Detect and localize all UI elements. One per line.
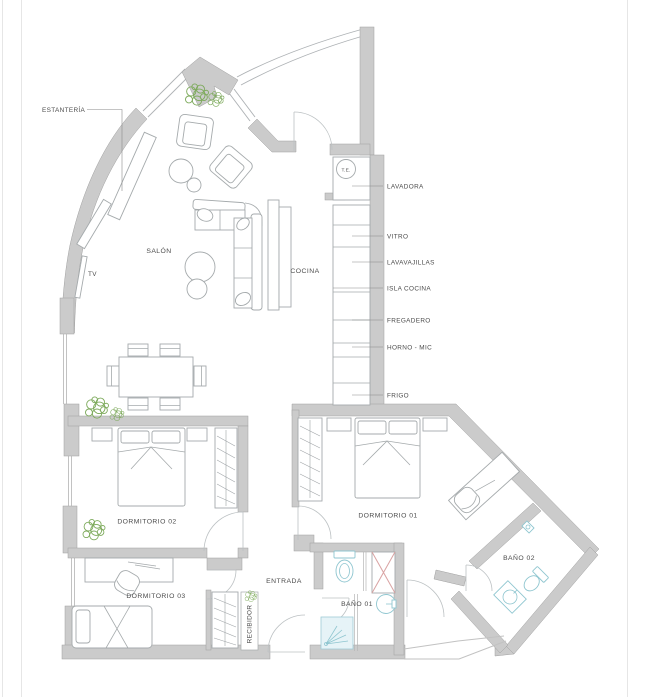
horno-mic-label: HORNO - MIC (387, 345, 432, 352)
floor-plan-drawing: T.E. (0, 0, 650, 697)
wardrobe (215, 428, 237, 508)
dorm02-door (204, 512, 243, 551)
coffee-tables (185, 252, 215, 299)
nightstand (327, 418, 351, 431)
bano01-top-wall (310, 543, 402, 552)
vitro-label: VITRO (387, 234, 408, 241)
tv-label: TV (88, 271, 97, 278)
dormitorio03-label: DORMITORIO 03 (126, 593, 185, 600)
glass-facade (143, 29, 363, 121)
toilet (334, 551, 355, 582)
te-label: T.E. (341, 168, 350, 174)
telecom-box: T.E. (337, 160, 356, 179)
dorm01-furniture (298, 418, 519, 520)
side-tables (169, 159, 201, 192)
wardrobe (212, 592, 238, 648)
right-wall-kitchen (370, 155, 384, 408)
hall-door (407, 580, 444, 617)
fregadero-label: FREGADERO (387, 318, 431, 325)
sink (494, 581, 527, 614)
kitchen-top-right-wall (330, 144, 370, 155)
dorm02-furniture (92, 428, 237, 508)
dormitorio02-label: DORMITORIO 02 (117, 519, 176, 526)
shower-tray (321, 617, 353, 649)
salon-label: SALÓN (146, 246, 171, 255)
wardrobe (298, 418, 322, 501)
dining-table (119, 357, 193, 397)
lavavajillas-label: LAVAVAJILLAS (387, 260, 435, 267)
desk (449, 452, 520, 519)
right-wall-upper (360, 27, 374, 155)
dining-set (107, 344, 206, 410)
entrada-label: ENTRADA (266, 578, 302, 585)
page-guides (3, 0, 628, 697)
frigo-label: FRIGO (387, 393, 409, 400)
shower-column (372, 552, 395, 593)
dorm03-furniture (72, 558, 258, 650)
nightstand (187, 428, 207, 441)
bano01-right-wall (394, 543, 404, 655)
lavadora-label: LAVADORA (387, 184, 424, 191)
armchair (176, 114, 214, 150)
dormitorio01-label: DORMITORIO 01 (358, 513, 417, 520)
bano02-door-stub (434, 570, 466, 586)
floor-plan-page: T.E. (0, 0, 650, 697)
bano02-label: BAÑO 02 (503, 553, 535, 562)
recibidor-label: RECIBIDOR (247, 605, 254, 644)
armchair (208, 144, 255, 190)
entrance-door (268, 615, 305, 652)
sink (377, 595, 397, 614)
bano01-label: BAÑO 01 (341, 599, 373, 608)
kitchen-door (294, 112, 332, 151)
curved-left-wall (62, 108, 148, 333)
dorm02-right-wall (238, 426, 248, 512)
estanteria-label: ESTANTERÍA (42, 105, 86, 114)
kitchen-counter (333, 157, 370, 405)
dorm02-dorm03-divider (68, 548, 207, 558)
isla-cocina-label: ISLA COCINA (387, 286, 431, 293)
bano02-door (466, 565, 492, 591)
nightstand (423, 418, 447, 431)
cocina-label: COCINA (290, 268, 319, 275)
left-windows (64, 334, 75, 606)
kitchen-top-left-wall (248, 119, 296, 152)
kitchen-island (268, 200, 291, 310)
nightstand (92, 428, 112, 441)
toilet (520, 566, 549, 595)
